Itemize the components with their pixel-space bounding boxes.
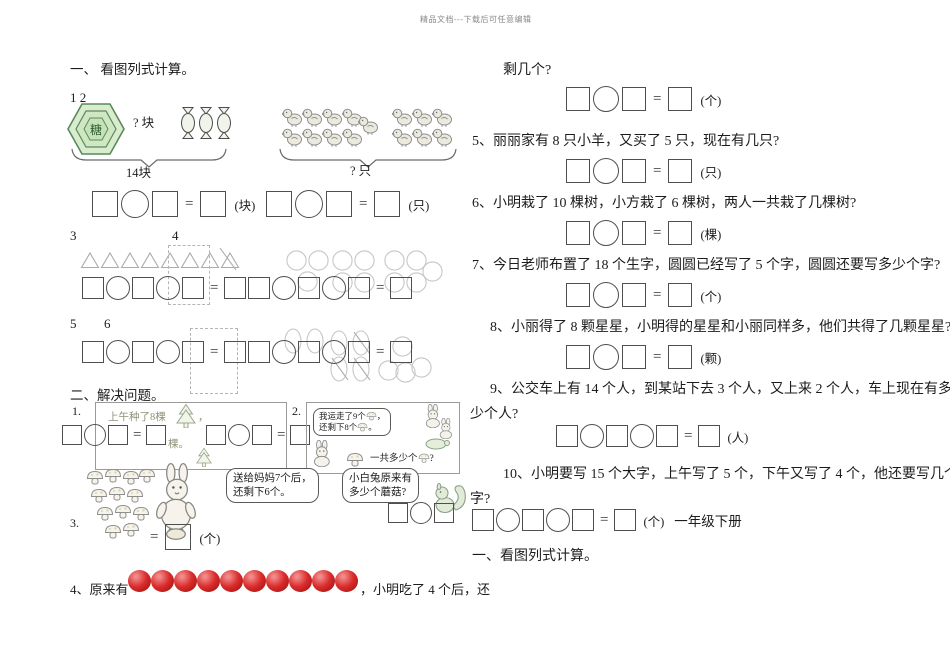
- mushroom-icon: [104, 524, 122, 539]
- operator-circle: [593, 282, 619, 308]
- operand-box: [62, 425, 82, 445]
- equation-right-8: = (颗): [566, 344, 721, 370]
- candy-icon: [180, 106, 196, 140]
- candy-question-label: ? 块: [133, 116, 154, 132]
- operand-box: [622, 221, 646, 245]
- operator-circle: [593, 220, 619, 246]
- question-label-6: 6: [104, 316, 111, 332]
- chick-icon: [412, 106, 433, 127]
- answer-box: [668, 283, 692, 307]
- question-label-3: 3: [70, 228, 77, 244]
- answer-box: [146, 425, 166, 445]
- apple-icon: [128, 570, 151, 592]
- answer-box: [374, 191, 400, 217]
- unit-label: (块): [234, 195, 255, 214]
- operand-box: [108, 425, 128, 445]
- equals-sign: =: [653, 349, 661, 366]
- equals-sign: =: [133, 427, 141, 444]
- problem-7-body: 今日老师布置了 18 个生字，圆圆已经写了 5 个字，圆圆还要写多少个字?: [493, 258, 940, 273]
- operand-box: [388, 503, 408, 523]
- answer-box: [668, 159, 692, 183]
- mushroom-icon: [86, 470, 104, 485]
- operator-circle: [156, 276, 180, 300]
- apple-icon: [312, 570, 335, 592]
- equation-right-9: = (人): [556, 424, 748, 448]
- solve2-speech-bubble: 我运走了9个， 还剩下8个。: [313, 408, 391, 436]
- operand-box: [252, 425, 272, 445]
- equation-template-4: =: [248, 276, 412, 300]
- chick-icon: [392, 106, 413, 127]
- operand-box: [566, 87, 590, 111]
- operand-box: [92, 191, 118, 217]
- mushroom-icon: [108, 486, 126, 501]
- equals-sign: =: [653, 163, 661, 180]
- solve1-caption: 上午种了8棵: [108, 409, 166, 424]
- operand-box: [522, 509, 544, 531]
- unit-label: (个): [700, 90, 721, 109]
- mushroom-icon: [90, 488, 108, 503]
- chicks-question-label: ? 只: [350, 164, 371, 180]
- solve2-question-line: 一共多少个?: [370, 450, 434, 464]
- candy-icon: [198, 106, 214, 140]
- solve3-bubble1-line1: 送给妈妈7个后，: [233, 472, 312, 486]
- answer-box: [614, 509, 636, 531]
- circle-shape: [308, 250, 329, 271]
- chick-icon: [432, 126, 453, 147]
- equation-template-2: = (只): [266, 190, 429, 218]
- circle-shape: [354, 250, 375, 271]
- operand-box: [152, 191, 178, 217]
- circle-shape: [411, 357, 432, 378]
- question-label-4: 4: [172, 228, 179, 244]
- solve1-caption-punct: ，: [198, 409, 209, 424]
- equals-sign: =: [185, 196, 193, 213]
- answer-box: [668, 87, 692, 111]
- problem-5-number: 5、: [472, 134, 493, 149]
- equals-sign: =: [376, 344, 384, 361]
- operand-box: [298, 341, 320, 363]
- solve4-number: 4、: [70, 582, 90, 597]
- answer-box: [668, 345, 692, 369]
- chick-icon: [322, 126, 343, 147]
- operand-box: [298, 277, 320, 299]
- problem-10-body: 小明要写 15 个大字，上午写了 5 个，下午又写了 4 个，他还要写几个大: [531, 467, 950, 482]
- problem-9-number: 9、: [490, 382, 511, 397]
- equals-sign: =: [684, 428, 692, 445]
- unit-label: (颗): [700, 348, 721, 367]
- equation-template-3: =: [82, 276, 246, 300]
- operator-circle: [322, 276, 346, 300]
- equation-template-5: =: [82, 340, 246, 364]
- operand-box: [656, 425, 678, 447]
- chick-icon: [322, 106, 343, 127]
- answer-box: [224, 277, 246, 299]
- operator-circle: [593, 86, 619, 112]
- chick-icon: [302, 126, 323, 147]
- solve2-bubble-line1: 我运走了9个: [319, 411, 366, 421]
- equals-sign: =: [150, 529, 158, 546]
- equals-sign: =: [600, 512, 608, 529]
- operand-box: [206, 425, 226, 445]
- operator-circle: [84, 424, 106, 446]
- operator-circle: [593, 344, 619, 370]
- solve3-bubble2-line2: 多少个蘑菇?: [349, 486, 412, 500]
- problem-6-body: 小明栽了 10 棵树，小方栽了 6 棵树，两人一共栽了几棵树?: [493, 196, 856, 211]
- solve2-bubble-punct2: 。: [368, 422, 377, 432]
- operator-circle: [156, 340, 180, 364]
- answer-box: [224, 341, 246, 363]
- operator-circle: [106, 276, 130, 300]
- equals-sign: =: [376, 280, 384, 297]
- operand-box: [82, 277, 104, 299]
- unit-label: (个): [700, 286, 721, 305]
- operand-box: [266, 191, 292, 217]
- answer-box: [390, 341, 412, 363]
- problem-9-text-line1: 9、公交车上有 14 个人，到某站下去 3 个人，又上来 2 个人，车上现在有多: [490, 381, 950, 399]
- apples-row: [128, 570, 358, 592]
- operand-box: [248, 341, 270, 363]
- triangle-icon: [140, 250, 160, 270]
- triangle-icon: [120, 250, 140, 270]
- problem-8-number: 8、: [490, 320, 511, 335]
- unit-label: (个): [643, 511, 664, 530]
- problem-10-text-line1: 10、小明要写 15 个大字，上午写了 5 个，下午又写了 4 个，他还要写几个…: [503, 466, 950, 484]
- solve3-number: 3.: [70, 516, 79, 531]
- chick-icon: [282, 126, 303, 147]
- question-label-5: 5: [70, 316, 77, 332]
- equals-sign: =: [210, 280, 218, 297]
- chick-icon: [412, 126, 433, 147]
- circle-shape: [384, 250, 405, 271]
- solve2-number: 2.: [292, 404, 301, 419]
- operand-box: [566, 283, 590, 307]
- apple-icon: [174, 570, 197, 592]
- operand-box: [556, 425, 578, 447]
- operand-box: [348, 341, 370, 363]
- solve3-speech-bubble-2: 小白兔原来有 多少个蘑菇?: [342, 468, 419, 503]
- solve1-equation-b: =: [206, 424, 310, 446]
- mushroom-icon: [346, 452, 364, 467]
- unit-label: (个): [199, 528, 220, 547]
- apple-icon: [243, 570, 266, 592]
- solve2-question: 一共多少个: [370, 454, 418, 464]
- solve3-equation-fragment: = (个): [146, 524, 220, 550]
- chick-icon: [282, 106, 303, 127]
- operator-circle: [546, 508, 570, 532]
- chick-icon: [358, 114, 379, 135]
- solve2-bubble-line2: 还剩下8个: [319, 422, 357, 432]
- operator-circle: [410, 502, 432, 524]
- problem-5-body: 丽丽家有 8 只小羊，又买了 5 只，现在有几只?: [493, 134, 779, 149]
- operand-box: [248, 277, 270, 299]
- mushroom-icon: [104, 468, 122, 483]
- operator-circle: [228, 424, 250, 446]
- problem-10-number: 10、: [503, 467, 531, 482]
- solve1-number: 1.: [72, 404, 81, 419]
- problem-5-text: 5、丽丽家有 8 只小羊，又买了 5 只，现在有几只?: [472, 133, 779, 151]
- equation-right-6: = (棵): [566, 220, 721, 246]
- problem-6-number: 6、: [472, 196, 493, 211]
- operator-circle: [496, 508, 520, 532]
- problem-9-text-line2: 少个人?: [470, 406, 518, 424]
- watermark-text: 精品文档---下载后可任意编辑: [420, 14, 532, 25]
- apple-icon: [151, 570, 174, 592]
- chick-icon: [432, 106, 453, 127]
- equation-right-7: = (个): [566, 282, 721, 308]
- worksheet-page: 精品文档---下载后可任意编辑 一、 看图列式计算。 1 2 糖 ? 块 14块…: [0, 0, 950, 672]
- answer-box: [390, 277, 412, 299]
- operand-box: [182, 277, 204, 299]
- operand-box: [572, 509, 594, 531]
- equals-sign: =: [277, 427, 285, 444]
- problem-9-body: 公交车上有 14 个人，到某站下去 3 个人，又上来 2 个人，车上现在有多: [511, 382, 950, 397]
- problem-7-text: 7、今日老师布置了 18 个生字，圆圆已经写了 5 个字，圆圆还要写多少个字?: [472, 257, 940, 275]
- mushroom-icon: [114, 504, 132, 519]
- operator-circle: [295, 190, 323, 218]
- operand-box: [622, 87, 646, 111]
- problem-7-number: 7、: [472, 258, 493, 273]
- candy-total-label: 14块: [126, 166, 151, 182]
- mushroom-icon: [418, 453, 430, 463]
- apple-icon: [335, 570, 358, 592]
- apple-icon: [266, 570, 289, 592]
- operand-box: [182, 341, 204, 363]
- problem-8-text: 8、小丽得了 8 颗星星，小明得的星星和小丽同样多，他们共得了几颗星星?: [490, 319, 950, 337]
- operand-box: [606, 425, 628, 447]
- operator-circle: [106, 340, 130, 364]
- solve2-qmark: ?: [430, 454, 434, 464]
- circle-shape: [286, 250, 307, 271]
- solve4-text-before: 4、原来有: [70, 582, 129, 598]
- mushroom-icon: [96, 506, 114, 521]
- solve1-fragment: 棵。: [168, 436, 189, 451]
- answer-box: [668, 221, 692, 245]
- apple-icon: [289, 570, 312, 592]
- section-next-title: 一、看图列式计算。: [472, 548, 598, 566]
- equals-sign: =: [210, 344, 218, 361]
- triangle-icon: [80, 250, 100, 270]
- answer-box: [698, 425, 720, 447]
- triangle-icon: [100, 250, 120, 270]
- apple-icon: [197, 570, 220, 592]
- booklet-label: 一年级下册: [674, 510, 742, 530]
- answer-box: [200, 191, 226, 217]
- apple-icon: [220, 570, 243, 592]
- equals-sign: =: [653, 287, 661, 304]
- equals-sign: =: [653, 225, 661, 242]
- operand-box: [622, 159, 646, 183]
- problem-6-text: 6、小明栽了 10 棵树，小方栽了 6 棵树，两人一共栽了几棵树?: [472, 195, 856, 213]
- equals-sign: =: [653, 91, 661, 108]
- mushroom-icon: [122, 522, 140, 537]
- mushroom-icon: [126, 488, 144, 503]
- solve1-equation-a: =: [62, 424, 166, 446]
- operator-circle: [593, 158, 619, 184]
- chick-icon: [392, 126, 413, 147]
- operator-circle: [322, 340, 346, 364]
- operator-circle: [272, 340, 296, 364]
- solve3-speech-bubble-1: 送给妈妈7个后， 还剩下6个。: [226, 468, 319, 503]
- solve3-operand-template: [388, 502, 454, 524]
- operand-box: [348, 277, 370, 299]
- problem-10-text-line2: 字?: [470, 491, 490, 509]
- unit-label: (棵): [700, 224, 721, 243]
- circle-shape: [422, 261, 443, 282]
- operand-box: [132, 277, 154, 299]
- solve3-bubble1-line2: 还剩下6个。: [233, 486, 312, 500]
- circle-shape: [332, 250, 353, 271]
- operand-box: [132, 341, 154, 363]
- equation-template-1: = (块): [92, 190, 255, 218]
- solve3-bubble2-line1: 小白兔原来有: [349, 472, 412, 486]
- rabbit-icon: [438, 418, 454, 439]
- operand-box: [472, 509, 494, 531]
- chick-icon: [302, 106, 323, 127]
- solve4-continuation: 剩几个?: [503, 62, 551, 80]
- crossout-mark: [218, 246, 238, 272]
- operand-box: [326, 191, 352, 217]
- unit-label: (只): [700, 162, 721, 181]
- problem-8-body: 小丽得了 8 颗星星，小明得的星星和小丽同样多，他们共得了几颗星星?: [511, 320, 950, 335]
- operator-circle: [121, 190, 149, 218]
- operand-box: [566, 159, 590, 183]
- operand-box: [566, 221, 590, 245]
- unit-label: (人): [727, 427, 748, 446]
- mushroom-icon: [366, 411, 377, 421]
- section1-title: 一、 看图列式计算。: [70, 62, 195, 79]
- operand-box: [434, 503, 454, 523]
- solve4-before-label: 原来有: [90, 582, 129, 597]
- operand-box: [82, 341, 104, 363]
- solve4-text-after: ，小明吃了 4 个后，还: [360, 582, 490, 598]
- tree-icon: [176, 403, 196, 428]
- operator-circle: [272, 276, 296, 300]
- operator-circle: [580, 424, 604, 448]
- candy-icon: [216, 106, 232, 140]
- mushroom-icon: [357, 422, 368, 432]
- equation-right-10: = (个) 一年级下册: [472, 508, 742, 532]
- operand-box: [622, 345, 646, 369]
- unit-label: (只): [408, 195, 429, 214]
- equation-right-4: = (个): [566, 86, 721, 112]
- equation-template-6: =: [248, 340, 412, 364]
- solve2-bubble-punct1: ，: [377, 411, 386, 421]
- operand-box: [566, 345, 590, 369]
- operator-circle: [630, 424, 654, 448]
- equals-sign: =: [359, 196, 367, 213]
- equation-right-5: = (只): [566, 158, 721, 184]
- rabbit-icon: [312, 440, 332, 467]
- operand-box: [622, 283, 646, 307]
- answer-box: [165, 524, 191, 550]
- candy-hexagon-label: 糖: [90, 122, 102, 137]
